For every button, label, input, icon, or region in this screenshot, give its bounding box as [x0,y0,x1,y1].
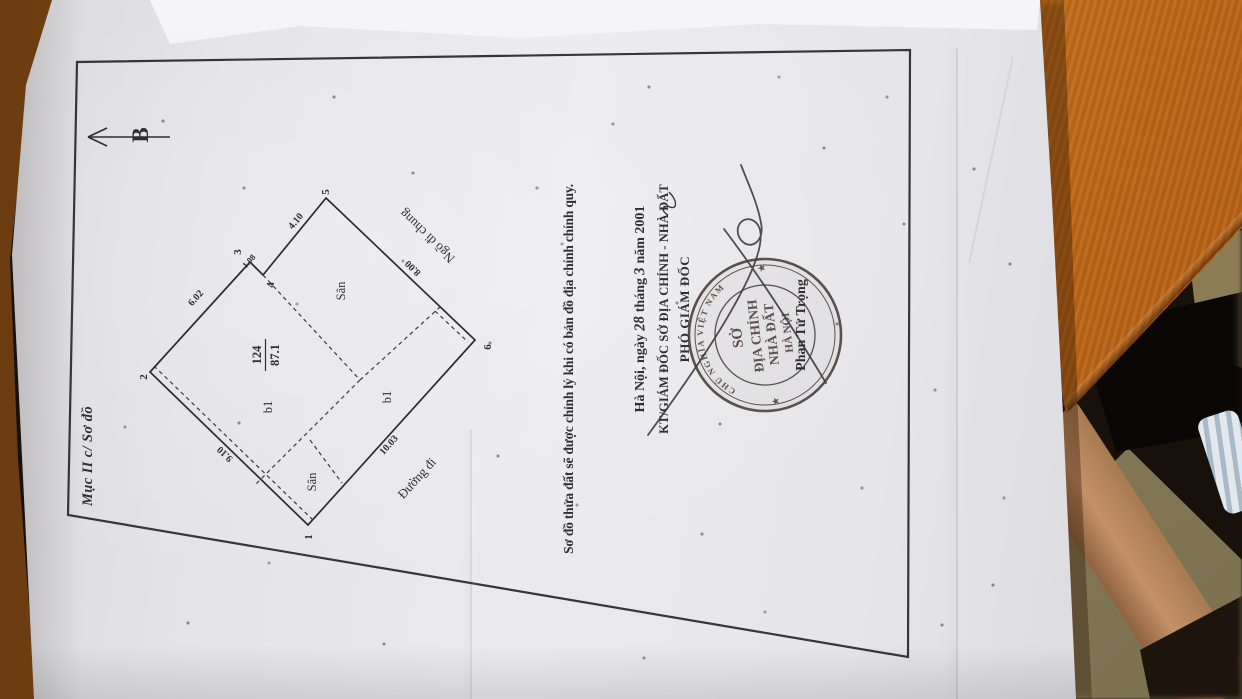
partition-line [435,311,468,342]
vertex-label: 5 [320,189,332,195]
stamp-star-right: ★ [757,263,769,273]
region-labels: Sân b1 b1 Sân [261,281,394,492]
handwritten-day: 28 [631,315,649,331]
vertex-label: 3 [232,249,244,255]
alley-label: Ngõ đi chung [396,206,458,266]
north-label: B [128,127,153,142]
document-content: Mục II c/ Sơ đồ B [0,0,1080,699]
edge-length: 4.10 [286,211,306,231]
partition-line [254,380,360,486]
vertex-label: 6 [482,344,494,350]
region-label: b1 [261,401,275,414]
date-year: năm 2001 [633,206,648,264]
region-label: Sân [305,472,319,492]
date-prefix: Hà Nội, ngày [633,334,648,412]
vertex-label: 4 [265,282,277,288]
handwritten-month: 3 [632,266,650,275]
signing-authority-title: KT/GIÁM ĐỐC SỞ ĐỊA CHÍNH - NHÀ ĐẤT [657,172,672,446]
photo-of-cadastral-document: Mục II c/ Sơ đồ B [0,0,1242,699]
signing-role-title: PHÓ GIÁM ĐỐC [677,189,693,429]
edge-length: 6.02 [186,288,206,308]
edge-length: 10.03 [378,433,401,457]
stamp-star-left: ★ [771,396,783,406]
paper-crease [956,48,958,699]
signer-name: Phan Tử Trọng [794,255,810,395]
parcel-id-fraction: 124 87.1 [250,339,282,371]
edge-length: 9.10 [215,444,235,464]
partition-line [155,367,313,520]
parcel-area: 87.1 [268,344,282,366]
vertex-label: 1 [303,534,315,540]
cadastral-map-svg: B 1 2 3 4 5 [0,0,1080,699]
paper-bottom-shade [0,645,1100,699]
vertex-label: 2 [138,374,150,380]
region-label: b1 [380,391,394,404]
date-line: Hà Nội, ngày 28 tháng 3 năm 2001 [632,187,649,431]
parcel-number: 124 [250,345,264,365]
region-label: Sân [334,281,348,301]
partition-line [360,307,440,380]
revision-note: Sơ đồ thửa đất sẽ được chỉnh lý khi có b… [561,167,577,571]
official-stamp: CHỦ NGHĨA VIỆT NAM ★ ★ SỞ ĐỊA CHÍNH NHÀ … [681,251,848,418]
date-month-word: tháng [633,278,648,312]
edge-length-labels: 9.10 6.02 1.08 4.10 8.00 10.03 [186,211,423,464]
road-label: Đường đi [394,454,439,501]
stamp-line: SỞ [728,327,747,349]
